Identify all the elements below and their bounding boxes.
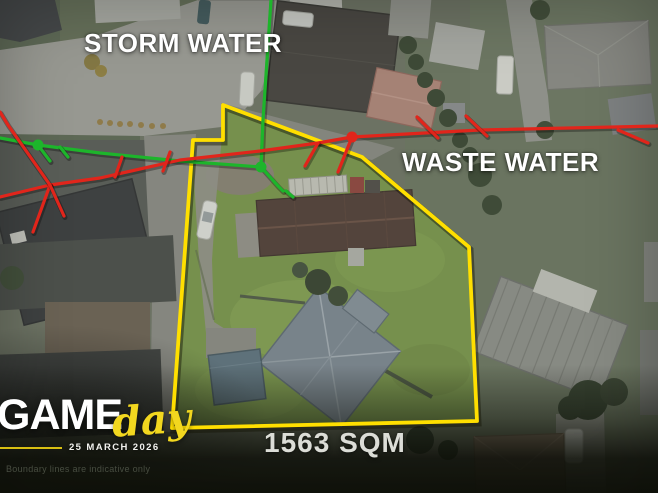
storm-water-node-icon xyxy=(33,140,44,151)
logo-word-day: day xyxy=(111,397,193,443)
auction-date-row: 25 MARCH 2026 xyxy=(0,442,160,453)
storm-water-node-icon xyxy=(256,162,267,173)
storm-water-line xyxy=(261,0,271,167)
logo-rule-line xyxy=(0,447,62,449)
waste-water-line xyxy=(50,185,64,216)
waste-water-line xyxy=(618,130,648,143)
land-area-label: 1563 SQM xyxy=(264,427,406,459)
waste-water-label: WASTE WATER xyxy=(402,147,599,178)
waste-water-node-icon xyxy=(347,132,358,143)
logo-word-game: GAME xyxy=(0,394,122,437)
gameday-logo: GAME day 25 MARCH 2026 xyxy=(0,392,220,462)
disclaimer-text: Boundary lines are indicative only xyxy=(6,464,150,474)
aerial-property-image: STORM WATER WASTE WATER 1563 SQM Boundar… xyxy=(0,0,658,493)
auction-date: 25 MARCH 2026 xyxy=(69,442,160,453)
storm-water-label: STORM WATER xyxy=(84,28,282,59)
storm-water-line xyxy=(286,191,293,197)
